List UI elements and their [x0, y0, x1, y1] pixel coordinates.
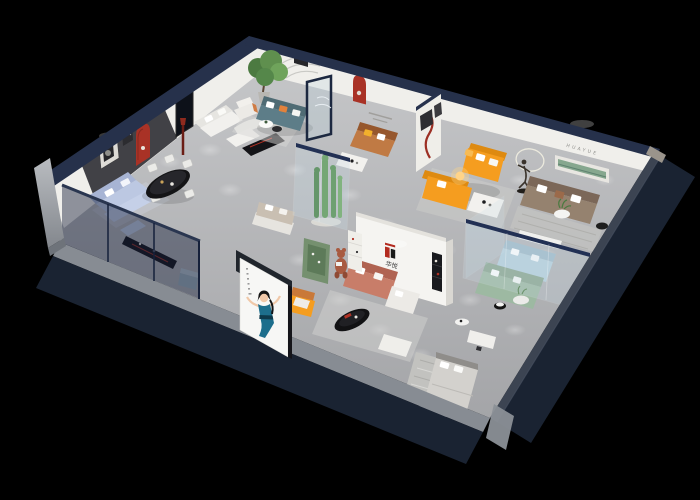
glass-atrium — [293, 143, 350, 230]
logo-wall-side — [446, 239, 453, 306]
table-decor — [170, 182, 174, 186]
niche-vase — [141, 146, 145, 150]
black-side-table — [596, 223, 608, 230]
corner-lamp — [456, 172, 465, 181]
small-round-table — [455, 319, 469, 326]
woman-head — [260, 294, 268, 302]
white-shelf-unit — [348, 230, 362, 272]
showroom-scene: HUAYUE — [0, 0, 700, 500]
green-display-cabinet — [302, 238, 330, 284]
table-decor — [160, 180, 163, 183]
dress-waist-band — [259, 315, 273, 320]
showroom-3d-render: 3D isometric cutaway render of a HUAYUE … — [0, 0, 700, 500]
logo-wall-niche — [432, 252, 442, 292]
billboard-edge — [288, 285, 292, 359]
glass-entry-partition — [307, 76, 331, 140]
red-arch-niche-2 — [353, 75, 366, 104]
niche-sculpture — [357, 91, 361, 95]
